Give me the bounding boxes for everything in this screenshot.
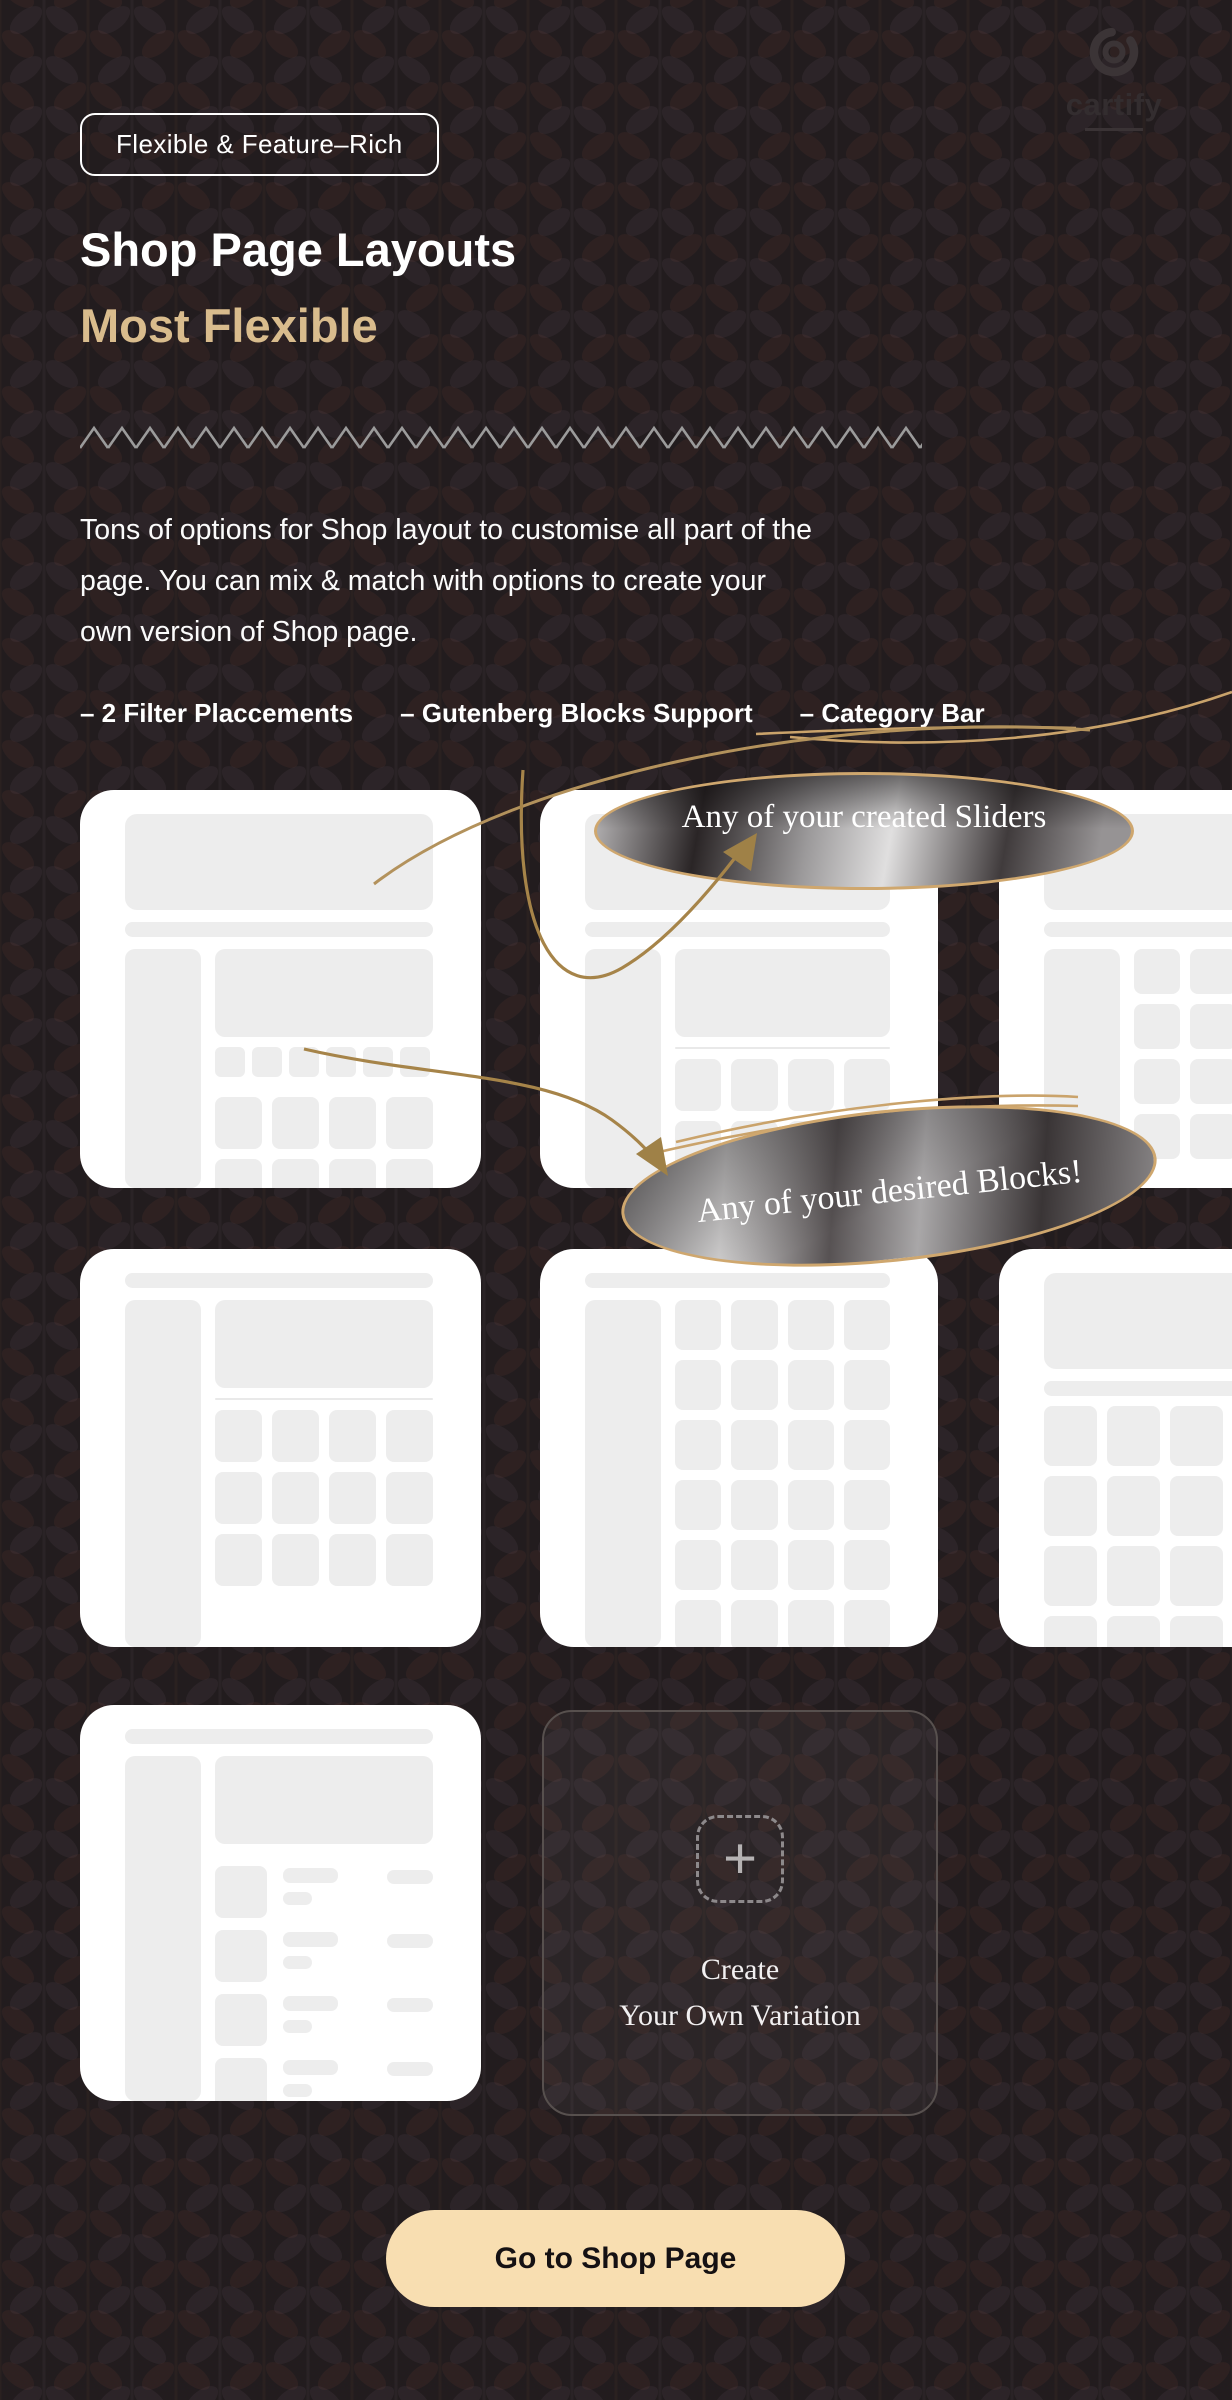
wireframe-product-grid: [1044, 1406, 1232, 1647]
wireframe-sidebar: [125, 1300, 201, 1647]
wireframe-product-grid: [215, 1410, 433, 1586]
wireframe-sidebar: [125, 949, 201, 1188]
description-line: page. You can mix & match with options t…: [80, 556, 940, 607]
wireframe-banner: [215, 949, 433, 1037]
go-to-shop-page-button[interactable]: Go to Shop Page: [386, 2210, 845, 2307]
logo-underline: [1085, 128, 1143, 131]
layout-card-1: [80, 790, 481, 1188]
description: Tons of options for Shop layout to custo…: [80, 505, 940, 658]
create-variation-card: + Create Your Own Variation: [542, 1710, 938, 2116]
title-line2: Most Flexible: [80, 288, 516, 364]
wireframe-product-grid: [675, 1300, 890, 1647]
wireframe-product-grid: [215, 1097, 433, 1188]
wireframe-divider: [215, 1398, 433, 1400]
feature-filter-placements: – 2 Filter Placcements: [80, 698, 353, 729]
wireframe-banner: [125, 814, 433, 910]
layout-card-7: [80, 1705, 481, 2101]
feature-category-bar: – Category Bar: [800, 698, 985, 729]
wireframe-sidebar: [125, 1756, 201, 2101]
callout-blocks-label: Any of your desired Blocks!: [695, 1153, 1084, 1231]
wireframe-sidebar: [585, 949, 661, 1188]
badge-label: Flexible & Feature–Rich: [116, 129, 403, 159]
zigzag-divider: [80, 421, 922, 455]
wireframe-list-row: [215, 1866, 433, 1918]
badge-flexible-feature-rich: Flexible & Feature–Rich: [80, 113, 439, 176]
wireframe-banner: [1044, 1273, 1232, 1369]
wireframe-bar: [1044, 922, 1232, 937]
wireframe-product-grid: [1134, 949, 1232, 1159]
wireframe-bar: [125, 1729, 433, 1744]
wireframe-banner: [215, 1300, 433, 1388]
callout-sliders-label: Any of your created Sliders: [682, 799, 1047, 836]
page-title: Shop Page Layouts Most Flexible: [80, 212, 516, 364]
title-line1: Shop Page Layouts: [80, 212, 516, 288]
layout-card-5: [540, 1249, 938, 1647]
wireframe-bar: [1044, 1381, 1232, 1396]
cartify-ring-icon: [1086, 24, 1142, 80]
logo-brand-text: cartify: [1022, 87, 1206, 123]
wireframe-bar: [585, 1273, 890, 1288]
feature-list: – 2 Filter Placcements – Gutenberg Block…: [80, 698, 985, 729]
wireframe-sidebar: [585, 1300, 661, 1647]
create-variation-label: Create Your Own Variation: [544, 1947, 936, 2039]
wireframe-list-row: [215, 1930, 433, 1982]
wireframe-banner: [675, 949, 890, 1037]
plus-dashed-box: +: [696, 1815, 784, 1903]
layout-card-6: [999, 1249, 1232, 1647]
feature-gutenberg-blocks: – Gutenberg Blocks Support: [400, 698, 753, 729]
description-line: Tons of options for Shop layout to custo…: [80, 505, 940, 556]
layout-card-4: [80, 1249, 481, 1647]
wireframe-bar: [125, 922, 433, 937]
wireframe-filter-chips: [215, 1047, 433, 1077]
wireframe-list-row: [215, 2058, 433, 2101]
wireframe-list-row: [215, 1994, 433, 2046]
shop-layouts-section: { "colors": { "background": "#221c1e", "…: [0, 0, 1232, 2400]
callout-sliders-bubble: Any of your created Sliders: [594, 772, 1134, 890]
logo: cartify: [1022, 24, 1206, 131]
description-line: own version of Shop page.: [80, 607, 940, 658]
wireframe-divider: [675, 1047, 890, 1049]
plus-icon: +: [723, 1830, 757, 1888]
wireframe-bar: [125, 1273, 433, 1288]
wireframe-banner: [215, 1756, 433, 1844]
wireframe-bar: [585, 922, 890, 937]
